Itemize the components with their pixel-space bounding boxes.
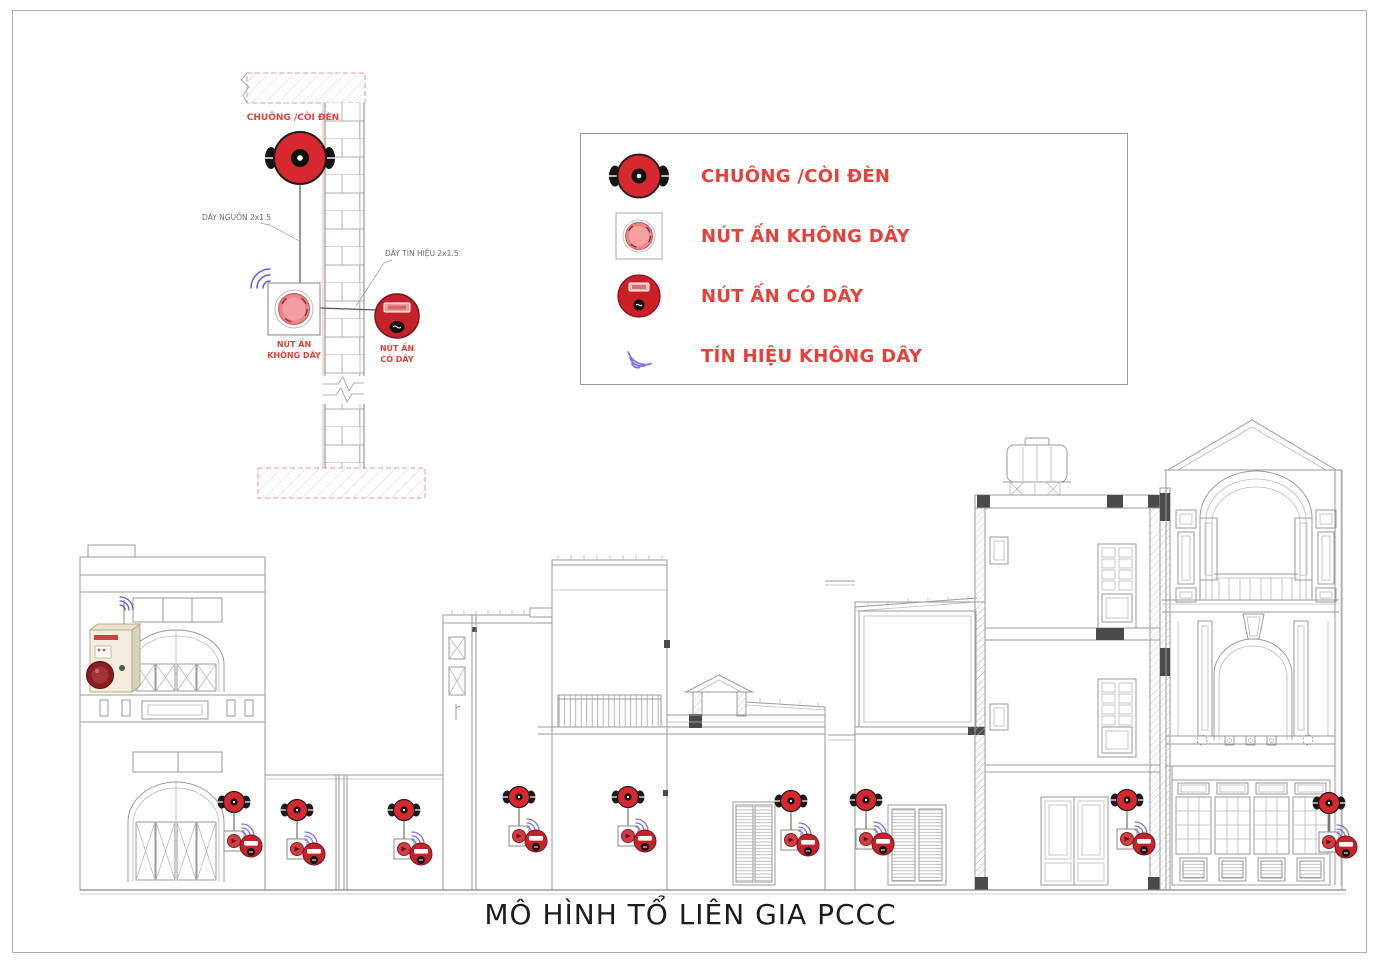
wireless-button-label: NÚT ẤN — [277, 337, 311, 349]
legend-label: NÚT ẤN KHÔNG DÂY — [701, 226, 910, 247]
legend-item-wired-button: NÚT ẤN CÓ DÂY — [581, 266, 1127, 326]
balcony-railing — [558, 695, 661, 727]
street-elevation-drawing — [78, 418, 1358, 896]
legend-label: TÍN HIỆU KHÔNG DÂY — [701, 346, 922, 367]
panel-knob — [119, 665, 125, 671]
bell-label: CHUÔNG /CÒI ĐÈN — [247, 111, 339, 123]
water-tank — [1003, 438, 1071, 496]
wireless-button-icon — [268, 283, 320, 335]
power-wire-leader — [260, 223, 301, 242]
device-cluster — [774, 791, 819, 857]
hatched-column — [975, 508, 985, 890]
ground-line — [80, 890, 1346, 894]
pediment — [1164, 420, 1339, 470]
power-wire-label: DÂY NGUỒN 2x1.5 — [202, 212, 271, 222]
legend-label: NÚT ẤN CÓ DÂY — [701, 286, 863, 307]
wired-button-icon — [607, 273, 671, 319]
wired-button-label: NÚT ẤN — [380, 341, 414, 353]
wired-button-icon — [375, 294, 419, 338]
wired-button-label: CÓ DÂY — [380, 353, 414, 364]
ceiling-slab — [241, 73, 365, 103]
legend: CHUÔNG /CÒI ĐÈN NÚT ẤN KHÔNG DÂY NÚT ẤN … — [580, 133, 1128, 385]
hatched-column — [1160, 488, 1170, 890]
panel-label — [94, 635, 118, 640]
signal-wire-label: DÂY TÍN HIỆU 2x1.5 — [385, 249, 459, 258]
louver-door — [733, 802, 775, 885]
hatched-column — [1150, 508, 1160, 890]
wireless-signal-icon — [251, 269, 270, 288]
legend-item-wireless-signal: TÍN HIỆU KHÔNG DÂY — [581, 326, 1127, 386]
drawing-title: MÔ HÌNH TỔ LIÊN GIA PCCC — [0, 898, 1381, 931]
ledge — [530, 608, 552, 617]
legend-item-bell: CHUÔNG /CÒI ĐÈN — [581, 146, 1127, 206]
bell-icon — [607, 152, 671, 200]
gable-roof — [684, 675, 754, 728]
house-8 — [1160, 420, 1342, 890]
legend-item-wireless-button: NÚT ẤN KHÔNG DÂY — [581, 206, 1127, 266]
wireless-button-label: KHÔNG DÂY — [267, 349, 321, 360]
legend-label: CHUÔNG /CÒI ĐÈN — [701, 166, 890, 187]
house-5 — [667, 581, 855, 890]
wireless-button-icon — [607, 212, 671, 260]
house-7 — [975, 438, 1160, 890]
wireless-signal-icon — [607, 339, 671, 373]
